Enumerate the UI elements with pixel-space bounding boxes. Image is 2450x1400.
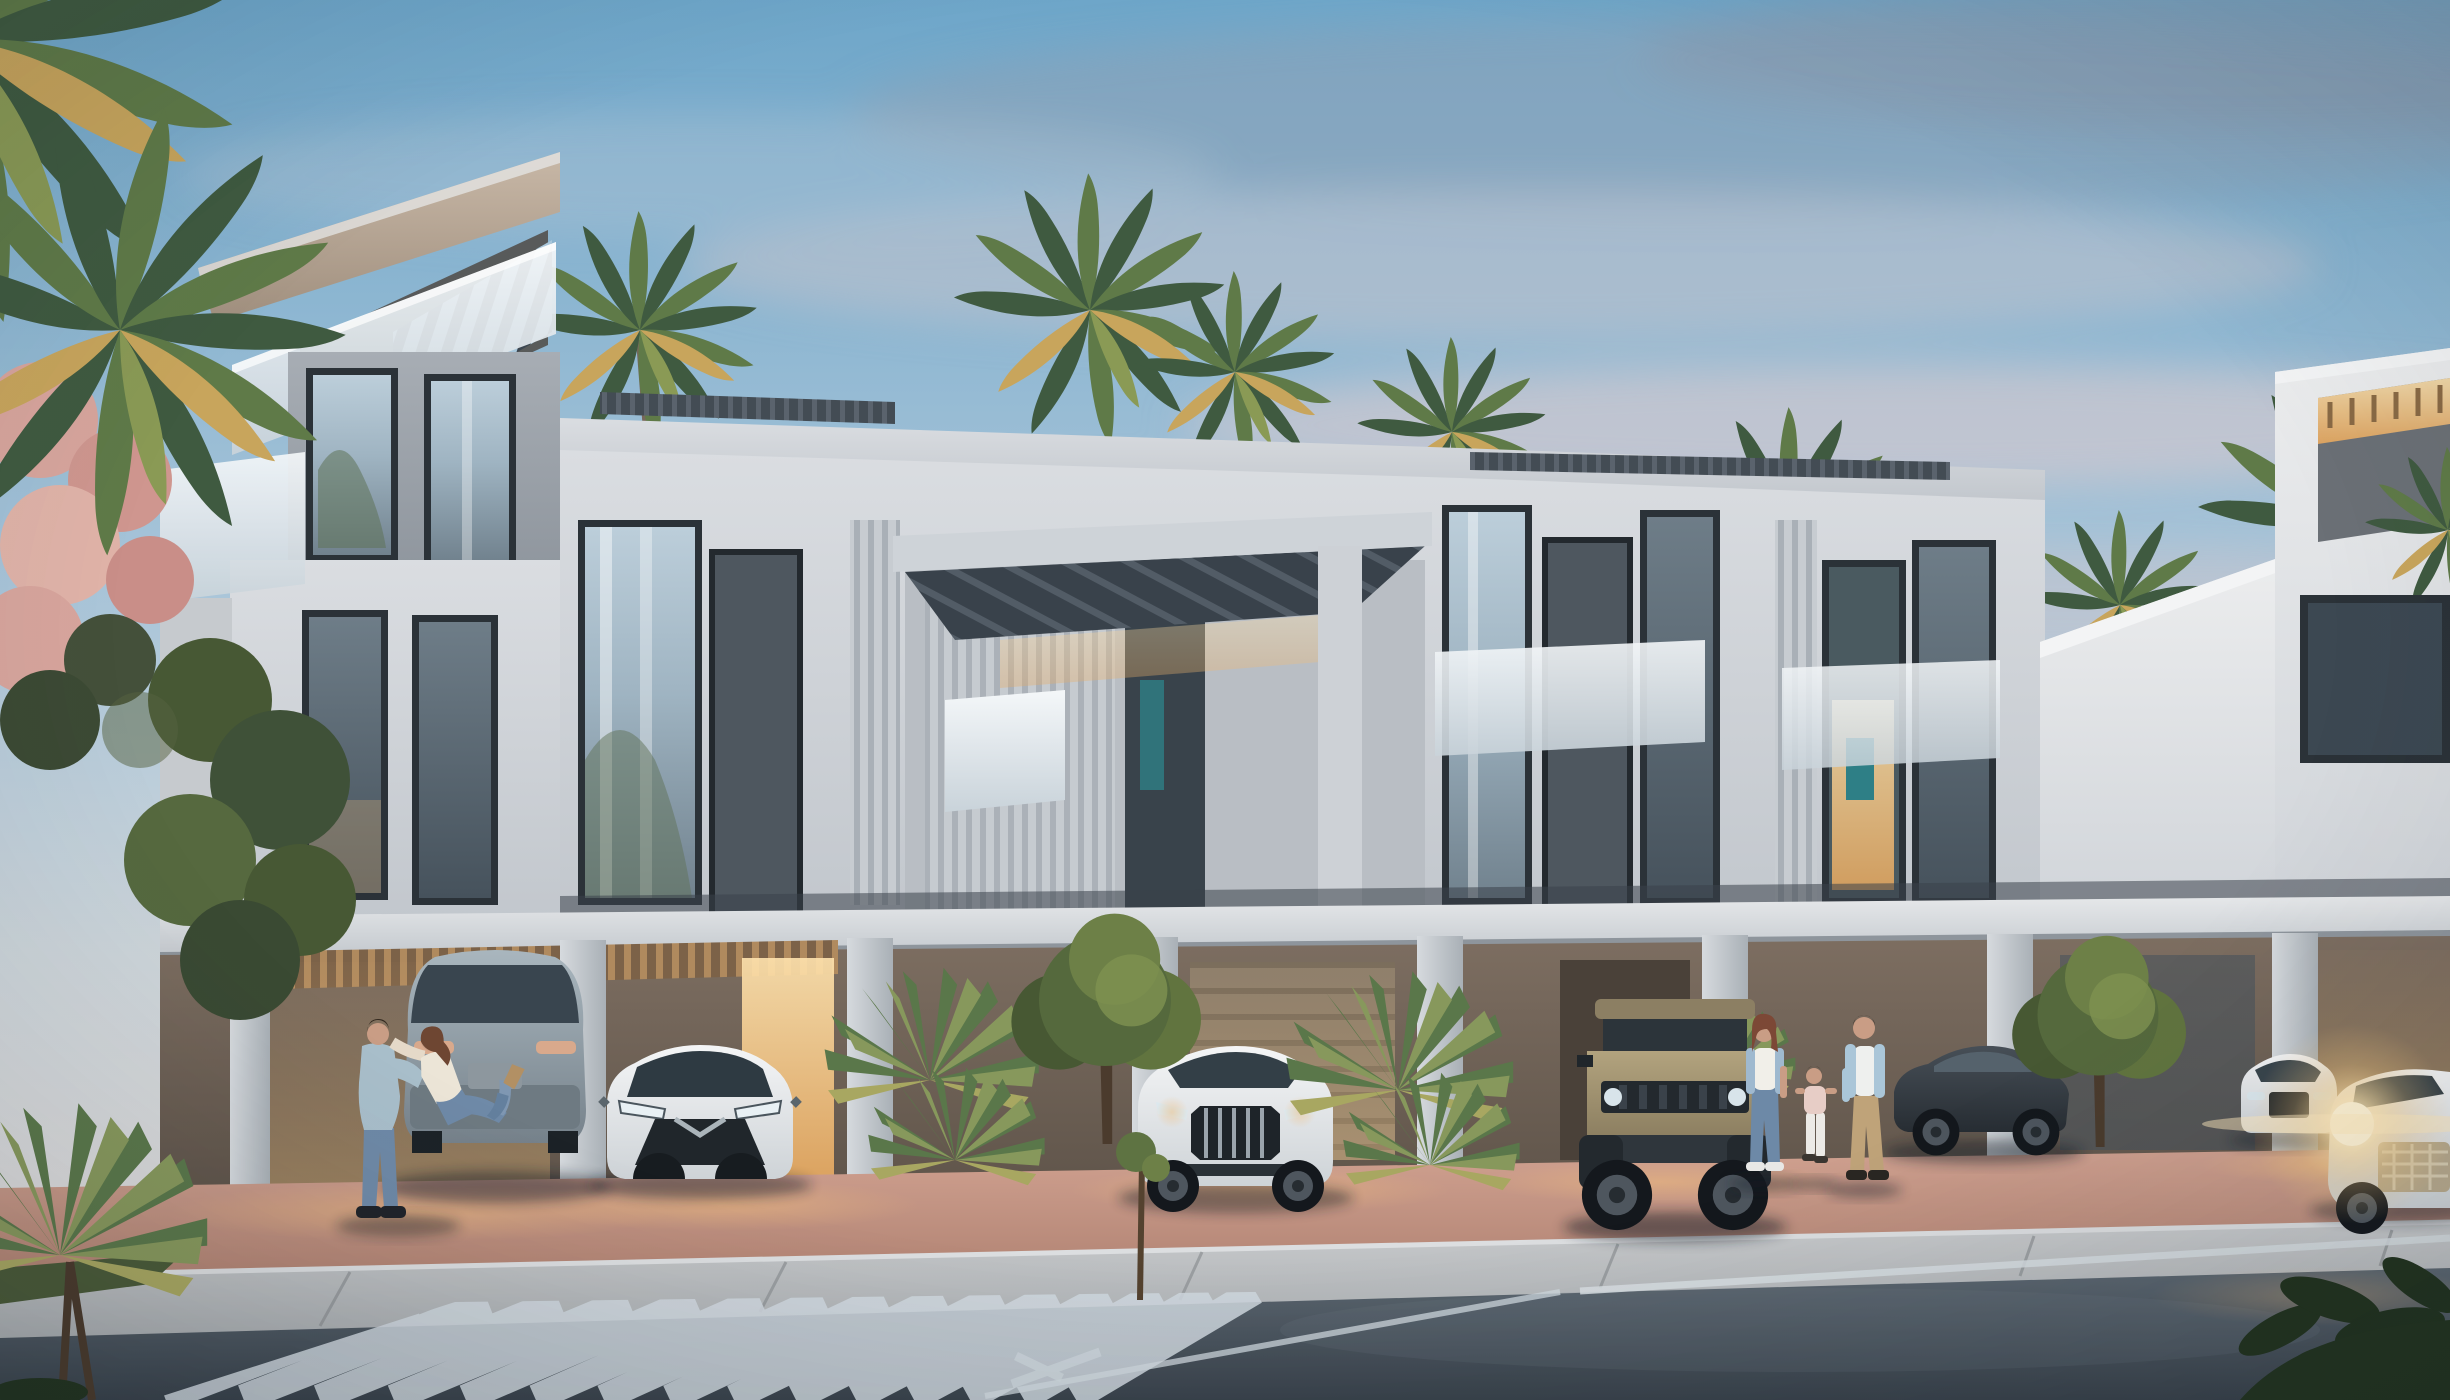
scene-canvas xyxy=(0,0,2450,1400)
architectural-rendering xyxy=(0,0,2450,1400)
vignette-overlay xyxy=(0,0,2450,1400)
